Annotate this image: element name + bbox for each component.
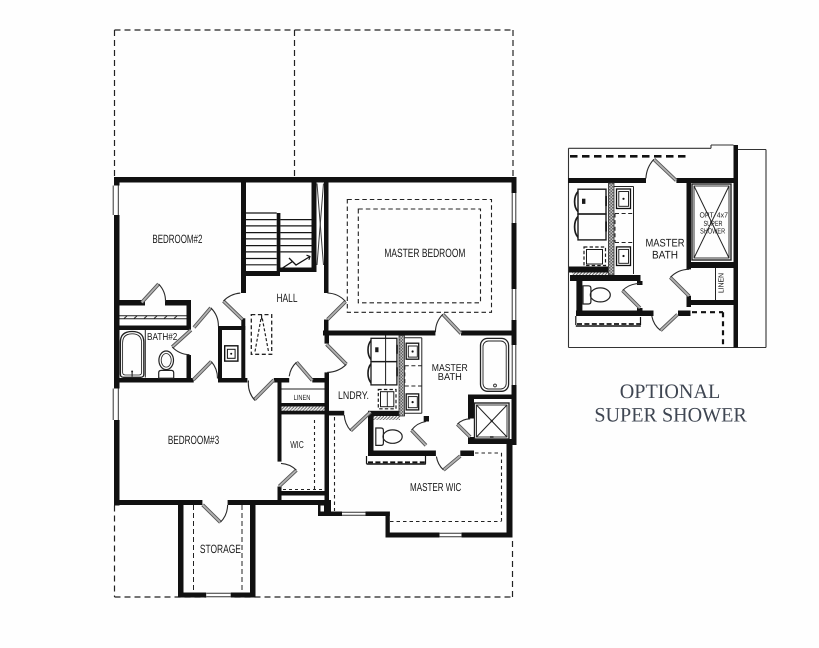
svg-text:BEDROOM#2: BEDROOM#2: [152, 232, 202, 246]
svg-text:OPTIONAL: OPTIONAL: [620, 381, 721, 403]
svg-text:SHOWER: SHOWER: [700, 227, 725, 236]
svg-text:WIC: WIC: [290, 440, 304, 451]
svg-text:STORAGE: STORAGE: [200, 542, 241, 556]
svg-text:BEDROOM#3: BEDROOM#3: [168, 433, 220, 447]
svg-text:SUPER SHOWER: SUPER SHOWER: [594, 405, 747, 427]
svg-text:LINEN: LINEN: [294, 393, 311, 402]
svg-text:MASTER BEDROOM: MASTER BEDROOM: [384, 246, 465, 260]
svg-text:BATH: BATH: [652, 250, 678, 262]
svg-text:HALL: HALL: [277, 291, 298, 305]
svg-text:LINEN: LINEN: [717, 273, 726, 293]
svg-text:BATH#2: BATH#2: [147, 332, 178, 343]
svg-text:BATH: BATH: [438, 372, 462, 383]
svg-text:MASTER WIC: MASTER WIC: [410, 482, 461, 494]
svg-text:MASTER: MASTER: [646, 238, 685, 250]
svg-text:LNDRY.: LNDRY.: [338, 390, 369, 402]
